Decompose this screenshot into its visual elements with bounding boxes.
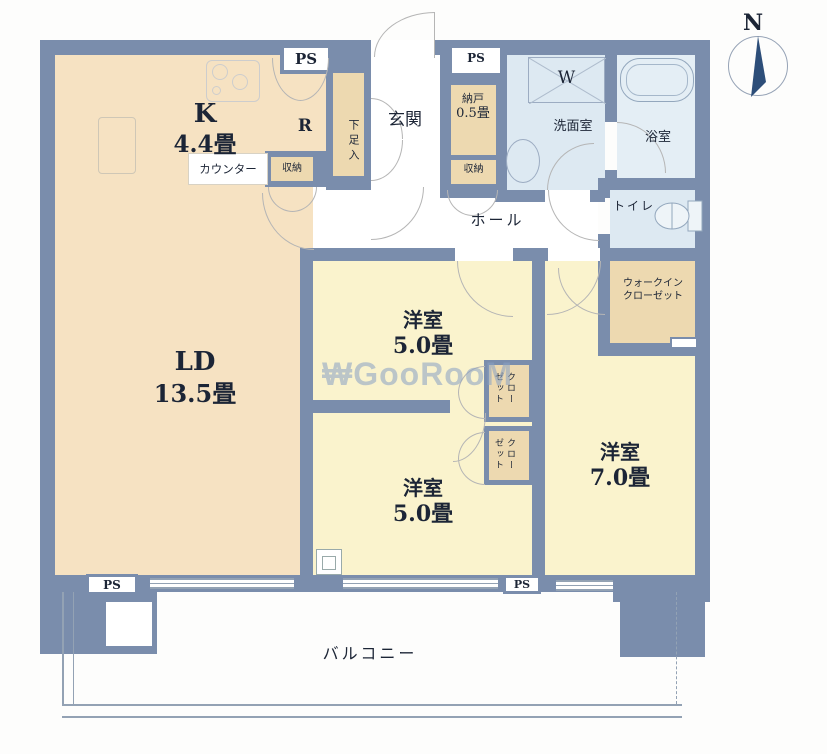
bedroom-right-label: 洋室 7.0畳 <box>550 440 690 493</box>
ld-balcony-window <box>150 578 294 589</box>
svg <box>740 30 780 102</box>
wall <box>300 248 313 575</box>
hall-label: ホール <box>455 211 540 230</box>
toilet-label: トイレ <box>602 199 666 214</box>
bedroom-right-name: 洋室 <box>550 440 690 465</box>
div <box>322 556 336 570</box>
washer-label: W <box>528 68 605 89</box>
storeroom-size: 0.5畳 <box>445 106 501 122</box>
bline <box>62 704 682 706</box>
dashv <box>676 592 677 704</box>
kitchen-name: K <box>145 98 265 131</box>
closet-lower-label: クローゼット <box>490 433 516 475</box>
hatch-icon <box>316 549 342 575</box>
refrigerator-icon <box>98 117 136 174</box>
wall <box>695 40 710 592</box>
wall <box>598 234 610 248</box>
meter-box <box>670 337 698 349</box>
watermark-text: ₩GooRooM <box>322 356 513 393</box>
wall <box>598 178 710 190</box>
kitchen-storage-label: 収納 <box>271 163 313 176</box>
wall <box>40 40 55 592</box>
wic-line2: クローゼット <box>611 291 695 304</box>
fx <box>626 64 688 96</box>
ld-name: LD <box>135 346 255 379</box>
wall <box>598 190 610 198</box>
gap <box>455 248 513 261</box>
bedroom-upper-label: 洋室 5.0畳 <box>348 308 498 361</box>
storeroom-name: 納戸 <box>445 92 501 106</box>
polygon <box>751 36 766 97</box>
pillar-right <box>613 580 710 602</box>
wall <box>495 190 545 202</box>
bedroom-lower-window <box>343 578 498 589</box>
bedroom-right-size: 7.0畳 <box>550 465 690 493</box>
wall <box>620 602 705 657</box>
balcony-label: バルコニー <box>300 644 440 664</box>
floorplan: PS PS PS PS <box>0 0 827 754</box>
counter-label: カウンター <box>188 162 268 176</box>
bathroom-label: 浴室 <box>630 130 686 146</box>
storeroom-label: 納戸 0.5畳 <box>445 92 501 122</box>
kitchen-label: K 4.4畳 <box>145 98 265 159</box>
bedroom-upper-name: 洋室 <box>348 308 498 333</box>
wall <box>605 40 617 122</box>
bline <box>62 592 64 706</box>
refrigerator-label: R <box>285 116 325 137</box>
stove-burner-icon <box>232 74 248 90</box>
rect <box>688 201 702 231</box>
bline <box>73 592 74 706</box>
sink-icon <box>506 139 540 183</box>
stove-burner-icon <box>212 86 221 95</box>
ps-bottom-center-label: PS <box>514 578 530 591</box>
ps-box-bottom-center: PS <box>503 575 541 594</box>
washroom-label: 洗面室 <box>530 119 616 135</box>
living-dining-label: LD 13.5畳 <box>135 346 255 409</box>
front-door-arc <box>374 12 435 57</box>
bedroom-lower-size: 5.0畳 <box>348 501 498 529</box>
walk-in-closet-label: ウォークイン クローゼット <box>611 278 695 303</box>
ps-top-center-label: PS <box>452 51 500 66</box>
ld-size: 13.5畳 <box>135 379 255 409</box>
shoe-closet-label: 下足入 <box>338 96 360 186</box>
gap <box>106 602 152 646</box>
kitchen-size: 4.4畳 <box>145 131 265 160</box>
wic-line1: ウォークイン <box>611 278 695 291</box>
bedroom-lower-name: 洋室 <box>348 476 498 501</box>
hall-storage-label: 収納 <box>451 164 496 177</box>
compass-needle-icon <box>740 30 780 102</box>
entrance-label: 玄関 <box>370 110 440 131</box>
stove-burner-icon <box>212 64 228 80</box>
bedroom-right-window <box>556 580 613 591</box>
bline <box>62 716 682 718</box>
bedroom-lower-label: 洋室 5.0畳 <box>348 476 498 529</box>
gap <box>548 248 600 261</box>
ps-bottom-left-label: PS <box>103 578 121 592</box>
front-door-leaf <box>434 12 435 58</box>
